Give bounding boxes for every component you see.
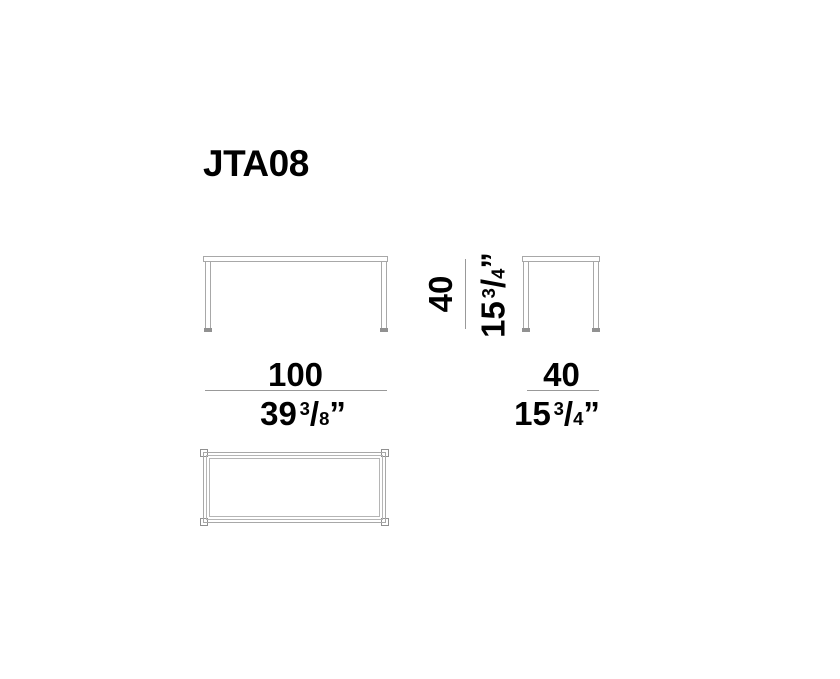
side-width-imperial-denominator: 4 xyxy=(573,408,583,429)
front-tabletop-edge xyxy=(203,256,388,262)
side-width-imperial-numerator: 3 xyxy=(554,398,564,419)
front-leg-left xyxy=(205,261,211,330)
side-leg-left xyxy=(523,261,529,330)
side-foot-right xyxy=(592,328,600,332)
height-imperial-label: 153/4” xyxy=(466,227,512,363)
plan-tabletop-inner-outline xyxy=(209,458,380,517)
height-imperial-numerator: 3 xyxy=(478,288,499,298)
front-width-imperial-label: 393/8” xyxy=(203,397,403,430)
front-width-imperial-slash: / xyxy=(310,395,319,432)
side-leg-right xyxy=(593,261,599,330)
side-tabletop-edge xyxy=(522,256,600,262)
front-width-imperial-unit: ” xyxy=(329,395,346,432)
front-leg-right xyxy=(381,261,387,330)
height-metric-label: 40 xyxy=(422,254,460,334)
height-imperial-whole: 15 xyxy=(475,301,512,338)
side-width-imperial-slash: / xyxy=(564,395,573,432)
height-imperial-unit: ” xyxy=(475,252,512,269)
front-width-imperial-whole: 39 xyxy=(260,395,297,432)
side-width-imperial-unit: ” xyxy=(583,395,600,432)
front-width-imperial-numerator: 3 xyxy=(300,398,310,419)
front-width-metric-label: 100 xyxy=(203,358,388,391)
side-foot-left xyxy=(522,328,530,332)
height-imperial-slash: / xyxy=(475,279,512,288)
product-code-title: JTA08 xyxy=(203,145,309,182)
front-foot-left xyxy=(204,328,212,332)
front-foot-right xyxy=(380,328,388,332)
spec-sheet: JTA08 40 153/4” 100 393/8” 40 153 xyxy=(0,0,840,679)
front-width-dimension-line xyxy=(205,390,387,391)
height-imperial-denominator: 4 xyxy=(488,269,509,279)
side-width-dimension-line xyxy=(527,390,599,391)
side-width-imperial-label: 153/4” xyxy=(486,397,628,430)
side-width-imperial-whole: 15 xyxy=(514,395,551,432)
side-width-metric-label: 40 xyxy=(522,358,601,391)
front-width-imperial-denominator: 8 xyxy=(319,408,329,429)
